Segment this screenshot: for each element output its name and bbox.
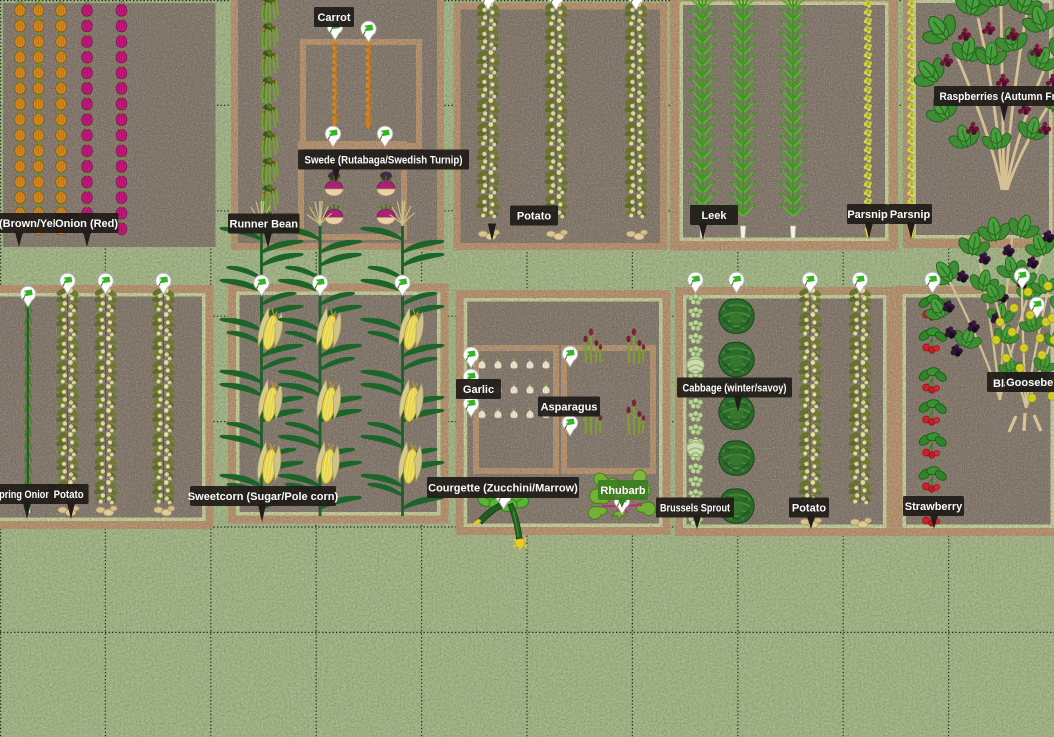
svg-text:Garlic: Garlic <box>463 384 494 396</box>
svg-text:Cabbage (winter/savoy): Cabbage (winter/savoy) <box>683 382 787 394</box>
svg-text:Rhubarb: Rhubarb <box>600 485 646 497</box>
svg-text:Potato: Potato <box>792 502 827 514</box>
svg-text:Gooseberry: Gooseberry <box>1006 377 1054 389</box>
svg-text:Potato: Potato <box>54 489 84 501</box>
svg-text:Parsnip: Parsnip <box>847 209 888 221</box>
svg-text:Swede (Rutabaga/Swedish Turnip: Swede (Rutabaga/Swedish Turnip) <box>305 154 463 166</box>
svg-text:Strawberry: Strawberry <box>905 501 963 513</box>
svg-text:Onion (Red): Onion (Red) <box>55 218 118 230</box>
svg-text:Leek: Leek <box>701 210 727 222</box>
svg-text:Brussels Sprout: Brussels Sprout <box>660 502 730 514</box>
svg-text:Sweetcorn (Sugar/Pole corn): Sweetcorn (Sugar/Pole corn) <box>188 491 339 503</box>
svg-text:Courgette (Zucchini/Marrow): Courgette (Zucchini/Marrow) <box>428 482 578 494</box>
svg-text:Raspberries (Autumn Fruiting): Raspberries (Autumn Fruiting) <box>940 91 1054 103</box>
svg-text:Carrot: Carrot <box>317 12 350 24</box>
svg-text:Parsnip: Parsnip <box>890 209 931 221</box>
svg-text:Potato: Potato <box>517 210 552 222</box>
svg-text:Asparagus: Asparagus <box>541 401 598 413</box>
svg-text:Runner Bean: Runner Bean <box>230 218 299 230</box>
svg-text:Spring Onion: Spring Onion <box>0 489 51 501</box>
